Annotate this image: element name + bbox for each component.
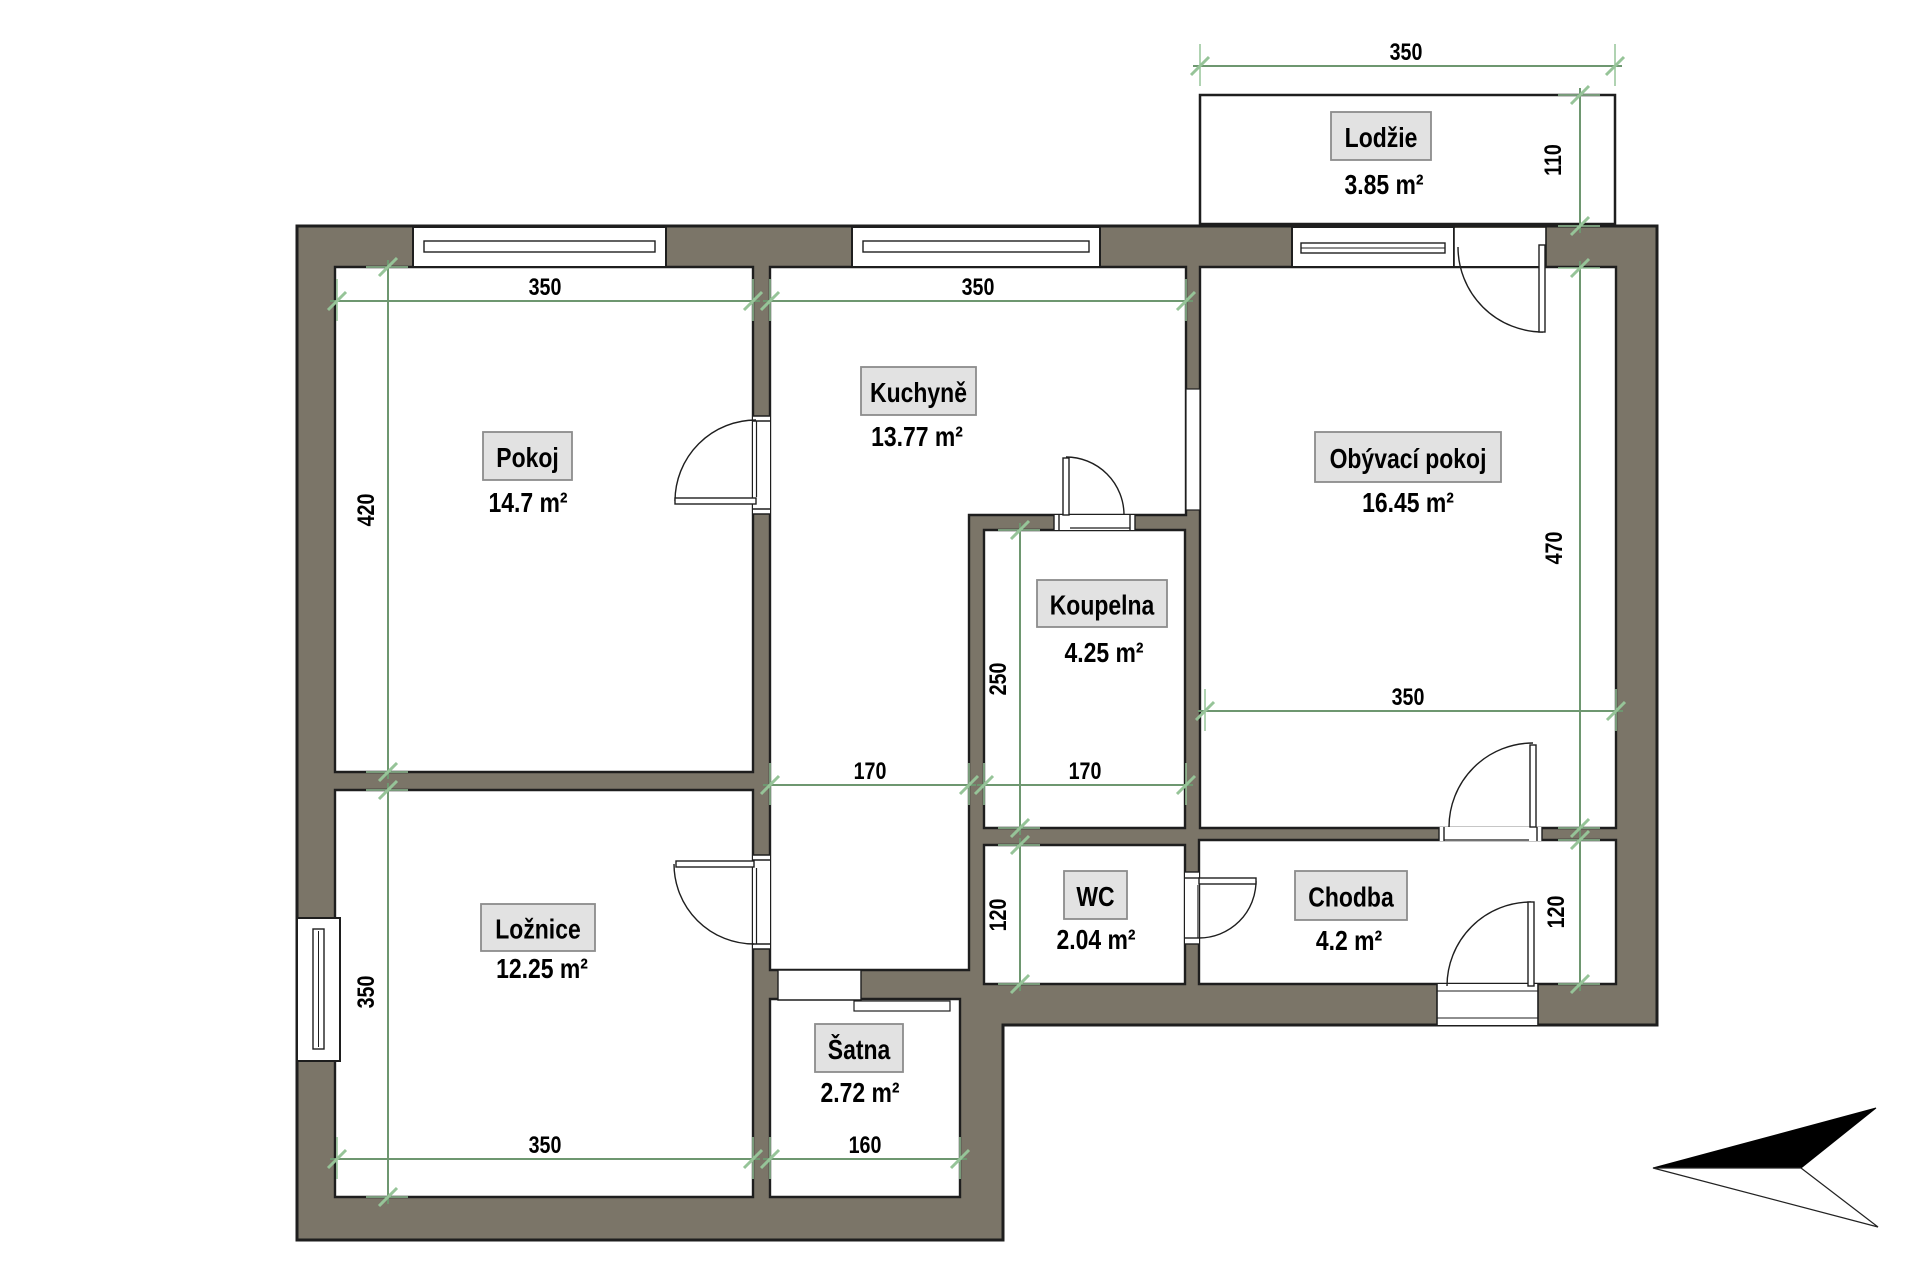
svg-text:2.04 m²: 2.04 m² [1056, 925, 1135, 956]
svg-text:170: 170 [1069, 757, 1102, 784]
svg-text:Koupelna: Koupelna [1050, 590, 1155, 621]
svg-text:350: 350 [529, 273, 562, 300]
svg-text:Kuchyně: Kuchyně [870, 378, 967, 409]
svg-text:4.25 m²: 4.25 m² [1064, 638, 1143, 669]
svg-text:250: 250 [984, 663, 1011, 696]
svg-text:12.25 m²: 12.25 m² [496, 954, 588, 985]
svg-text:3.85 m²: 3.85 m² [1344, 170, 1423, 201]
svg-text:Pokoj: Pokoj [496, 443, 558, 474]
svg-text:350: 350 [352, 976, 379, 1009]
svg-text:2.72 m²: 2.72 m² [820, 1078, 899, 1109]
svg-text:WC: WC [1076, 882, 1114, 913]
svg-text:350: 350 [962, 273, 995, 300]
svg-text:Šatna: Šatna [828, 1033, 891, 1066]
svg-text:110: 110 [1539, 144, 1566, 176]
svg-text:350: 350 [1392, 683, 1425, 710]
svg-text:120: 120 [984, 899, 1011, 932]
svg-text:4.2 m²: 4.2 m² [1316, 926, 1382, 957]
svg-text:Obývací pokoj: Obývací pokoj [1330, 444, 1487, 475]
svg-text:14.7 m²: 14.7 m² [488, 488, 567, 519]
svg-text:120: 120 [1542, 896, 1569, 929]
svg-text:16.45 m²: 16.45 m² [1362, 488, 1454, 519]
svg-text:350: 350 [529, 1131, 562, 1158]
svg-text:Ložnice: Ložnice [495, 914, 580, 945]
svg-text:13.77 m²: 13.77 m² [871, 422, 963, 453]
svg-text:420: 420 [352, 494, 379, 527]
svg-text:350: 350 [1390, 38, 1423, 65]
svg-text:160: 160 [849, 1131, 882, 1158]
svg-text:Lodžie: Lodžie [1345, 123, 1418, 154]
svg-text:170: 170 [854, 757, 887, 784]
svg-text:470: 470 [1540, 532, 1567, 565]
svg-text:Chodba: Chodba [1308, 882, 1394, 913]
